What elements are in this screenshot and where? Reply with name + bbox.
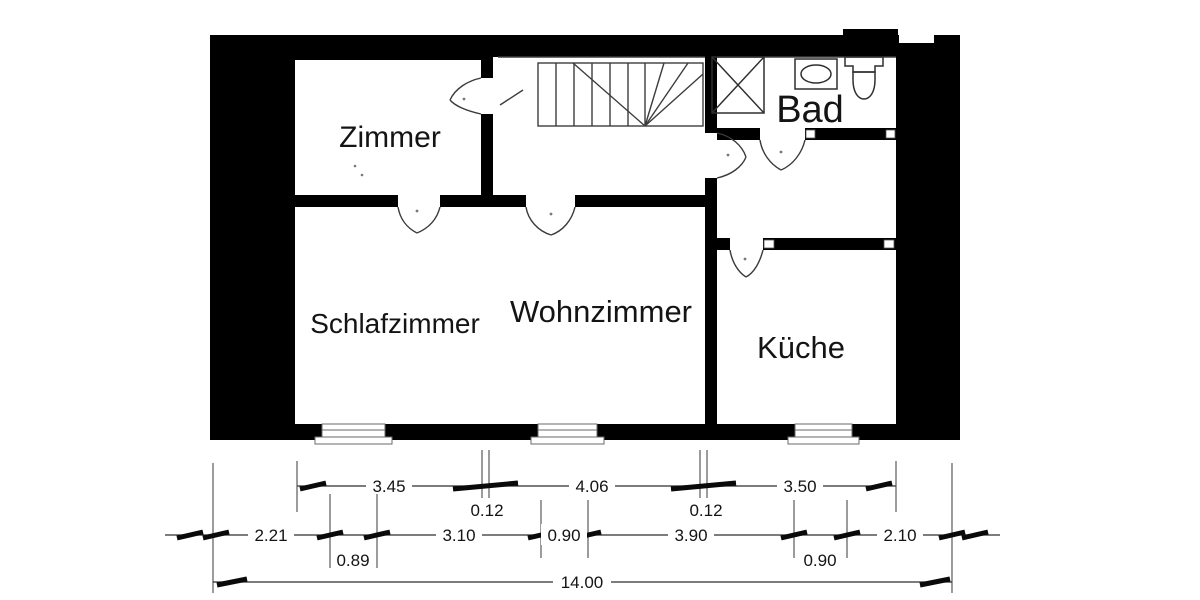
dim-label-wall-0-12-b: 0.12 — [689, 501, 722, 520]
stair-winder-line — [645, 63, 688, 126]
window-wohnzimmer — [531, 424, 604, 444]
room-label-bad: Bad — [776, 89, 844, 131]
door-dot — [463, 98, 466, 101]
wall-kueche-top — [763, 238, 896, 250]
exterior-walls — [210, 29, 960, 440]
wall-kueche-top-stub — [717, 238, 730, 250]
scan-artifact — [354, 165, 357, 168]
stair-winder-line — [645, 74, 703, 126]
door-swing-zimmer — [450, 78, 481, 114]
staircase-outline — [538, 63, 703, 126]
dim-label-14-00: 14.00 — [561, 573, 604, 592]
door-dot — [416, 210, 419, 213]
wall-top-zimmer — [295, 35, 493, 60]
door-jamb-mark — [884, 240, 894, 248]
wall-horizontal-2 — [440, 195, 526, 207]
window-schlafzimmer — [315, 424, 392, 444]
door-swing-kueche — [730, 250, 763, 277]
room-label-wohnzimmer: Wohnzimmer — [510, 294, 692, 329]
scan-notch — [899, 34, 934, 43]
dim-label-2-21: 2.21 — [254, 526, 287, 545]
dim-label-3-45: 3.45 — [372, 477, 405, 496]
dim-label-4-06: 4.06 — [575, 477, 608, 496]
door-dot — [727, 154, 730, 157]
toilet-icon — [845, 57, 883, 72]
dim-label-0-90: 0.90 — [547, 526, 580, 545]
room-label-schlafzimmer: Schlafzimmer — [310, 308, 480, 339]
dim-label-0-90-b: 0.90 — [803, 551, 836, 570]
wall-zimmer-hall-lower — [481, 114, 493, 207]
staircase — [500, 63, 703, 126]
dimension-total: 14.00 — [213, 571, 952, 592]
floor-plan-svg: Zimmer Bad Schlafzimmer Wohnzimmer Küche… — [0, 0, 1200, 600]
door-jamb-mark — [806, 130, 815, 138]
door-swing-schlafzimmer — [398, 207, 440, 233]
wall-right — [896, 35, 960, 440]
door-swing-bad — [760, 140, 805, 170]
stair-winder-line — [573, 63, 645, 126]
wall-horizontal-1 — [295, 195, 398, 207]
dim-label-wall-0-12-a: 0.12 — [470, 501, 503, 520]
wall-wohnzimmer-kueche — [705, 178, 717, 424]
washbasin-bowl — [801, 65, 831, 83]
dimension-row-top: 3.45 4.06 3.50 0.12 0.12 — [297, 450, 896, 520]
doors — [398, 78, 805, 277]
toilet-bowl — [853, 72, 875, 99]
door-dot — [780, 151, 783, 154]
door-dot — [744, 258, 747, 261]
door-jamb-mark — [886, 130, 895, 138]
dim-label-3-10: 3.10 — [442, 526, 475, 545]
floor-plan-page: Zimmer Bad Schlafzimmer Wohnzimmer Küche… — [0, 0, 1200, 600]
stair-walk-line — [500, 90, 523, 105]
dim-label-3-50: 3.50 — [783, 477, 816, 496]
dim-label-2-10: 2.10 — [883, 526, 916, 545]
wall-top-step — [843, 29, 898, 37]
wall-left — [210, 35, 295, 440]
room-label-kueche: Küche — [757, 330, 845, 365]
door-jamb-mark — [764, 240, 774, 248]
door-dot — [550, 213, 553, 216]
wall-bad-bottom-left — [717, 128, 760, 140]
wall-hall-bad — [705, 55, 717, 133]
dimension-row-lower: 0.89 0.90 — [336, 551, 836, 570]
room-label-zimmer: Zimmer — [339, 121, 441, 154]
scan-artifact — [361, 174, 364, 177]
wall-horizontal-3 — [575, 195, 705, 207]
dim-label-0-89: 0.89 — [336, 551, 369, 570]
dim-label-3-90: 3.90 — [674, 526, 707, 545]
window-kueche — [788, 424, 859, 444]
wall-zimmer-hall-upper — [481, 55, 493, 78]
room-labels: Zimmer Bad Schlafzimmer Wohnzimmer Küche — [310, 89, 845, 365]
door-swing-wohnzimmer — [526, 207, 575, 235]
